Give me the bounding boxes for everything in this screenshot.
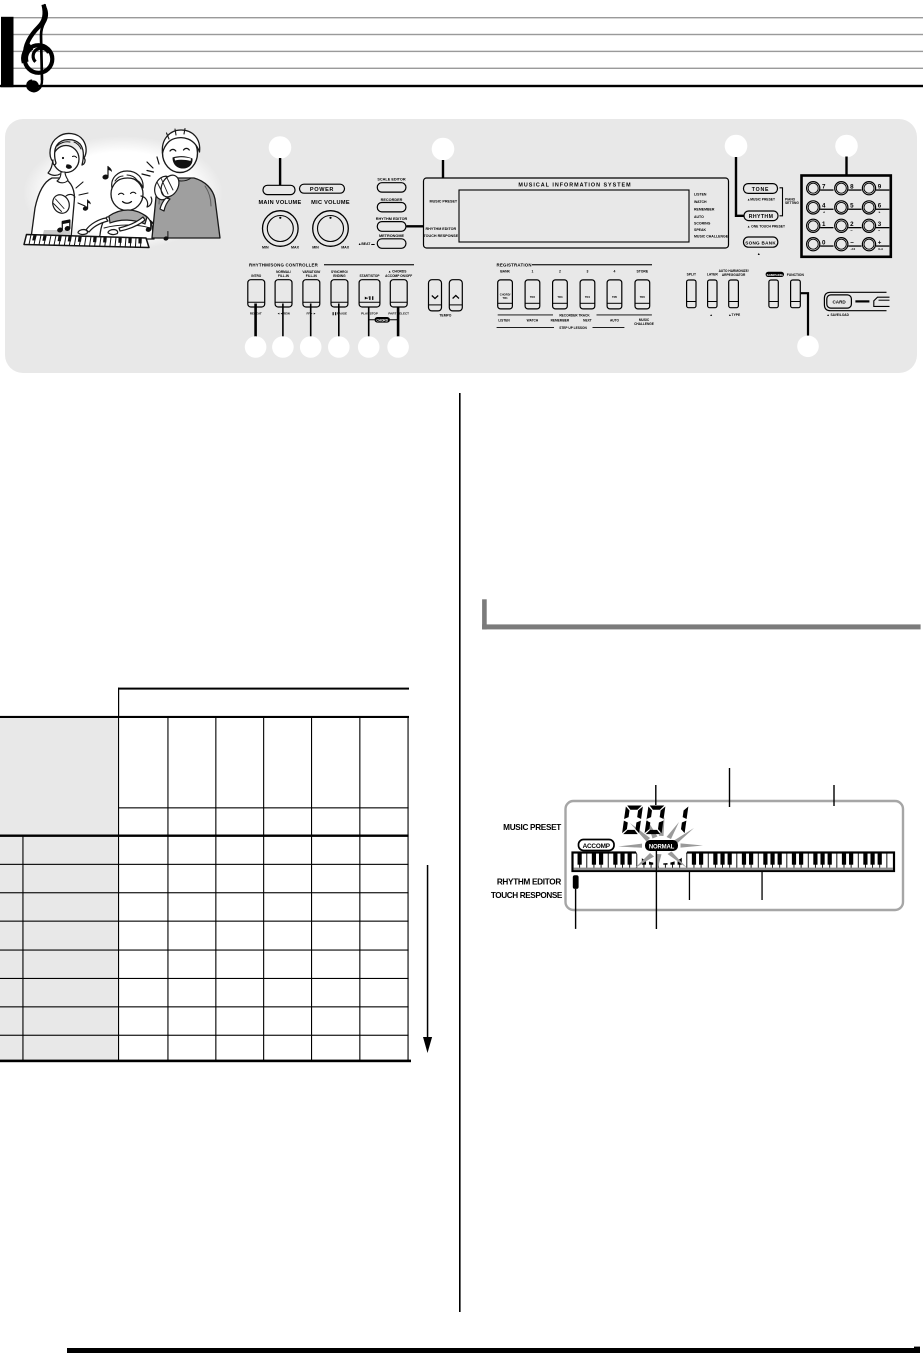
svg-text:3: 3 — [878, 221, 882, 228]
svg-text:INTRO: INTRO — [251, 274, 261, 278]
svg-text:CARD: CARD — [832, 300, 846, 305]
svg-text:MIN: MIN — [262, 246, 269, 250]
svg-text:SCALE EDITOR: SCALE EDITOR — [377, 178, 405, 182]
svg-text:SPEAK: SPEAK — [694, 228, 707, 232]
svg-text:TEMPO: TEMPO — [439, 314, 451, 318]
svg-text:STEP UP LESSON: STEP UP LESSON — [559, 326, 587, 330]
svg-text:••: •• — [851, 229, 853, 233]
svg-text:SAMPLING: SAMPLING — [767, 273, 784, 277]
svg-text:MUSIC CHALLENGE: MUSIC CHALLENGE — [694, 235, 729, 239]
svg-text:TR4: TR4 — [585, 295, 591, 299]
svg-text:▲ ONE TOUCH PRESET: ▲ ONE TOUCH PRESET — [747, 225, 785, 229]
svg-text:TR6: TR6 — [640, 295, 646, 299]
svg-text:RHYTHM EDITOR: RHYTHM EDITOR — [426, 227, 457, 231]
svg-text:RECORDER TRACK: RECORDER TRACK — [559, 313, 590, 317]
svg-text:RHYTHM EDITOR: RHYTHM EDITOR — [497, 878, 562, 887]
svg-text:ARPEGGIATOR: ARPEGGIATOR — [722, 273, 746, 277]
svg-text:TR1: TR1 — [503, 296, 509, 300]
svg-text:▲BEAT ▬: ▲BEAT ▬ — [358, 242, 375, 246]
svg-text:MAIN VOLUME: MAIN VOLUME — [258, 200, 301, 206]
svg-text:8: 8 — [850, 183, 854, 190]
svg-text:RHYTHM: RHYTHM — [749, 214, 774, 220]
svg-text:−: − — [850, 239, 854, 246]
svg-text:SCORING: SCORING — [694, 222, 711, 226]
svg-text:◄: ◄ — [822, 210, 825, 214]
svg-text:5: 5 — [850, 203, 854, 210]
svg-text:6: 6 — [878, 203, 882, 210]
svg-text:2: 2 — [559, 269, 561, 273]
svg-text:RHYTHM EDITOR: RHYTHM EDITOR — [376, 217, 408, 221]
svg-text:+: + — [878, 239, 882, 246]
svg-text:RECORDER: RECORDER — [381, 198, 403, 202]
svg-text:NORMAL: NORMAL — [649, 844, 675, 850]
svg-text:REMEMBER: REMEMBER — [694, 207, 715, 211]
svg-text:7: 7 — [822, 183, 826, 190]
svg-text:TOUCH RESPONSE: TOUCH RESPONSE — [424, 234, 459, 238]
svg-text:ACCOMP ON/OFF: ACCOMP ON/OFF — [385, 274, 412, 278]
svg-text:••: •• — [878, 229, 880, 233]
svg-text:NEXT: NEXT — [583, 319, 592, 323]
svg-text:REGISTRATION: REGISTRATION — [497, 263, 532, 268]
svg-text:START/STOP: START/STOP — [360, 274, 381, 278]
svg-text:▲: ▲ — [757, 252, 761, 256]
svg-text:►: ► — [878, 210, 881, 214]
svg-text:0: 0 — [822, 239, 826, 246]
svg-text:WATCH: WATCH — [694, 200, 707, 204]
svg-text:LAYER: LAYER — [707, 273, 718, 277]
svg-text:TR5: TR5 — [612, 295, 618, 299]
svg-text:CHALLENGE: CHALLENGE — [634, 322, 654, 326]
svg-text:▲: ▲ — [710, 313, 713, 317]
svg-text:FUNCTION: FUNCTION — [787, 273, 805, 277]
svg-text:▲TYPE: ▲TYPE — [728, 313, 741, 317]
svg-text:▲ SAVE/LOAD: ▲ SAVE/LOAD — [827, 313, 850, 317]
svg-text:FILL-IN: FILL-IN — [306, 274, 318, 278]
svg-text:LISTEN: LISTEN — [498, 319, 510, 323]
svg-text:FILL-IN: FILL-IN — [278, 274, 290, 278]
svg-text:MAX: MAX — [341, 246, 350, 250]
svg-text:1: 1 — [531, 269, 533, 273]
svg-text:MIC VOLUME: MIC VOLUME — [311, 200, 350, 206]
svg-text:STORE: STORE — [636, 269, 648, 273]
svg-text:SETTING: SETTING — [785, 201, 799, 205]
svg-text:1: 1 — [822, 221, 826, 228]
svg-text:4: 4 — [822, 203, 826, 210]
svg-text:SPLIT: SPLIT — [687, 273, 696, 277]
svg-text:9: 9 — [878, 183, 882, 190]
svg-text:4: 4 — [614, 269, 616, 273]
svg-text:MUSIC PRESET: MUSIC PRESET — [503, 823, 561, 832]
svg-text:÷10: ÷10 — [851, 247, 856, 251]
svg-text:G.A: G.A — [878, 247, 883, 251]
svg-text:LISTEN: LISTEN — [694, 193, 707, 197]
svg-text:ENDING: ENDING — [333, 274, 346, 278]
svg-text:RHYTHM/SONG CONTROLLER: RHYTHM/SONG CONTROLLER — [249, 263, 319, 268]
svg-text:MIN: MIN — [312, 246, 319, 250]
svg-text:ACCOMP: ACCOMP — [583, 843, 611, 850]
svg-text:TR3: TR3 — [557, 295, 563, 299]
svg-text:CHORD: CHORD — [376, 318, 388, 322]
svg-text:3: 3 — [586, 269, 588, 273]
svg-text:MAX: MAX — [291, 246, 300, 250]
svg-text:METRONOME: METRONOME — [379, 234, 405, 238]
svg-text:POWER: POWER — [310, 187, 334, 193]
svg-text:BANK: BANK — [500, 269, 510, 273]
svg-text:REMEMBER: REMEMBER — [551, 319, 570, 323]
svg-text:AUTO: AUTO — [610, 319, 619, 323]
svg-text:2: 2 — [850, 221, 854, 228]
svg-text:▶/❚❚: ▶/❚❚ — [364, 296, 374, 300]
svg-text:TONE: TONE — [752, 187, 770, 193]
svg-text:WATCH: WATCH — [527, 319, 539, 323]
svg-text:TOUCH RESPONSE: TOUCH RESPONSE — [491, 891, 563, 900]
svg-text:▲ CHORDS: ▲ CHORDS — [388, 269, 407, 273]
svg-text:TR2: TR2 — [530, 295, 536, 299]
svg-text:SONG BANK: SONG BANK — [745, 241, 776, 246]
svg-text:AUTO: AUTO — [694, 215, 704, 219]
svg-text:MUSIC PRESET: MUSIC PRESET — [430, 199, 458, 203]
svg-text:▲MUSIC PRESET: ▲MUSIC PRESET — [747, 197, 775, 201]
svg-text:MUSICAL INFORMATION SYSTEM: MUSICAL INFORMATION SYSTEM — [518, 183, 631, 189]
